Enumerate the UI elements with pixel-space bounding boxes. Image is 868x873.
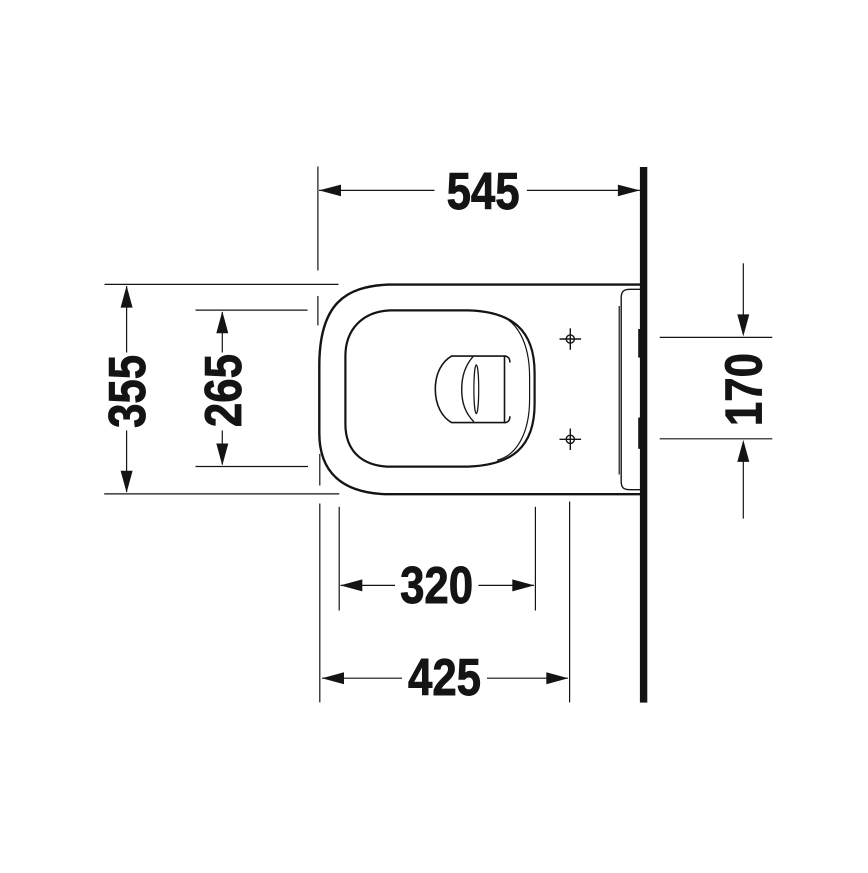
svg-text:265: 265 bbox=[196, 354, 253, 427]
svg-text:545: 545 bbox=[447, 164, 520, 221]
svg-text:170: 170 bbox=[716, 353, 773, 426]
svg-text:320: 320 bbox=[400, 558, 473, 615]
svg-text:425: 425 bbox=[408, 650, 481, 707]
svg-text:355: 355 bbox=[100, 355, 157, 428]
